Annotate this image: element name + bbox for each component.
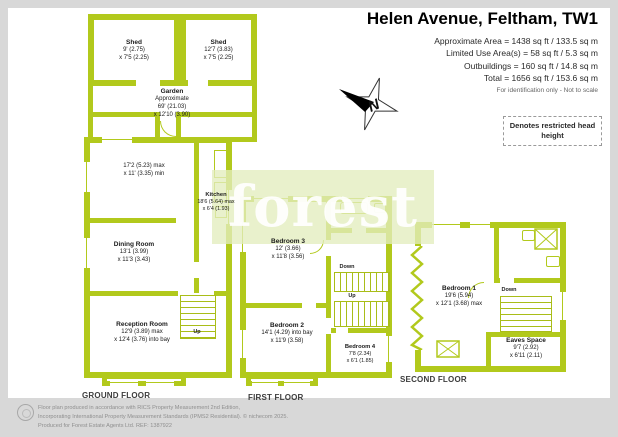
approximate-area: Approximate Area = 1438 sq ft / 133.5 sq… [367,35,598,47]
room-label-bedroom1: Bedroom 1 19'6 (5.94) x 12'1 (3.68) max [424,285,494,309]
floor-label-ground: GROUND FLOOR [82,391,150,400]
window [342,196,368,202]
floor-label-first: FIRST FLOOR [248,393,304,402]
sink-icon [522,230,535,241]
room-label-bedroom4: Bedroom 4 7'8 (2.34) x 6'1 (1.85) [332,344,388,365]
window [254,196,288,202]
door-opening [188,80,208,86]
stairs [334,272,390,292]
nichecom-logo-icon [17,404,34,421]
wall [486,332,491,372]
door-opening [352,228,366,233]
window [240,222,246,252]
window [284,380,310,386]
footer-line-1: Floor plan produced in accordance with R… [38,404,468,413]
floor-label-second: SECOND FLOOR [400,375,467,384]
door-opening [500,278,514,283]
footer-line-3: Produced for Forest Estate Agents Ltd. R… [38,422,468,431]
skylight-icon [436,340,460,363]
room-label-kitchen: Kitchen 18'6 (5.64) max x 6'4 (1.93) [194,192,238,213]
outbuildings-area: Outbuildings = 160 sq ft / 14.8 sq m [367,60,598,72]
footer-disclaimer: Floor plan produced in accordance with R… [38,404,468,431]
wall [88,86,93,139]
toilet-icon [374,203,386,213]
room-label-bedroom3: Bedroom 3 12' (3.66) x 11'8 (3.56) [249,238,327,262]
room-label-shed-left: Shed 9' (2.75) x 7'5 (2.25) [92,39,176,63]
stairs-down-label: Down [492,287,526,293]
window [102,137,132,143]
window [146,380,174,386]
door-opening [336,328,348,333]
compass-icon: N [338,76,402,137]
room-label-bedroom2: Bedroom 2 14'1 (4.29) into bay x 11'9 (3… [247,322,327,346]
shower-icon [534,228,558,255]
door-opening [136,80,160,86]
window [252,380,278,386]
room-label-dining-room: Dining Room 13'1 (3.99) x 11'3 (3.43) [88,241,180,265]
toilet-icon [546,256,560,267]
page-title: Helen Avenue, Feltham, TW1 [367,9,598,29]
room-label-sitting-area: 17'2 (5.23) max x 11' (3.35) min [96,163,192,178]
footer-line-2: Incorporating International Property Mea… [38,413,468,422]
bath-icon [340,202,368,214]
wall [494,222,499,282]
stairs [500,296,552,332]
window [240,330,246,358]
limited-use-area: Limited Use Area(s) = 58 sq ft / 5.3 sq … [367,47,598,59]
window [470,222,490,228]
room-label-eaves-space: Eaves Space 9'7 (2.92) x 6'11 (2.11) [492,337,560,361]
stairs-down-label: Down [333,264,361,270]
wall [90,218,176,223]
room-label-shed-right: Shed 12'7 (3.83) x 7'5 (2.25) [184,39,253,63]
restricted-head-height-legend: Denotes restricted head height [503,116,602,146]
kitchen-counter-icon [214,150,227,178]
room-label-garden: Garden Approximate 69' (21.03) x 12'10 (… [122,88,222,119]
wall [252,86,257,139]
window [110,380,138,386]
door-opening [194,262,199,278]
wall [90,291,178,296]
floorplan-canvas: Helen Avenue, Feltham, TW1 Approximate A… [0,0,618,437]
door-opening [302,303,316,308]
window [432,222,460,228]
window [84,162,90,192]
stairs-up-label: Up [342,293,362,299]
wall [326,196,331,378]
stairs [334,301,390,327]
window [560,292,566,320]
room-label-reception-room: Reception Room 12'9 (3.89) max x 12'4 (3… [88,321,196,345]
